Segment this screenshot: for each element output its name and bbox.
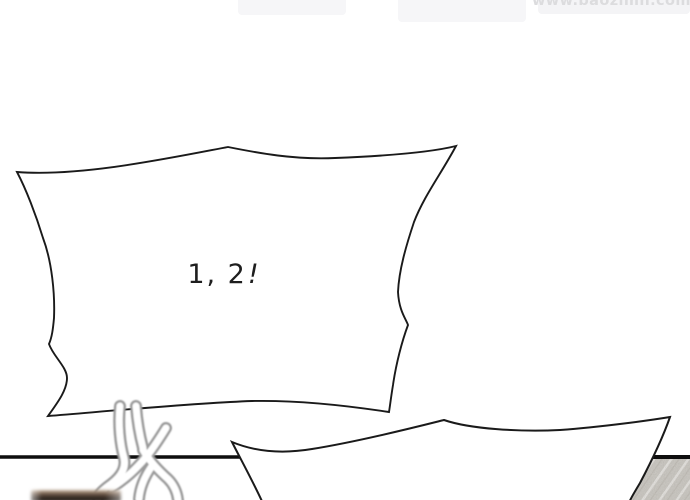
dialogue-exclamation: ! xyxy=(248,259,261,290)
site-watermark-text: www.baozimh.com xyxy=(532,0,690,9)
panel-line-art xyxy=(0,0,690,500)
sketch-figure xyxy=(98,406,178,500)
cutoff-artwork-strip xyxy=(31,490,121,500)
site-watermark: www.baozimh.com xyxy=(532,0,690,13)
speech-bubble-small xyxy=(232,417,670,500)
speech-bubble-large-text: 1, 2! xyxy=(168,259,280,291)
dialogue-digits: 1, 2 xyxy=(187,259,247,290)
watermark-residue xyxy=(238,0,346,15)
watermark-residue xyxy=(398,0,526,22)
comic-panel-canvas: www.baozimh.com xyxy=(0,0,690,500)
